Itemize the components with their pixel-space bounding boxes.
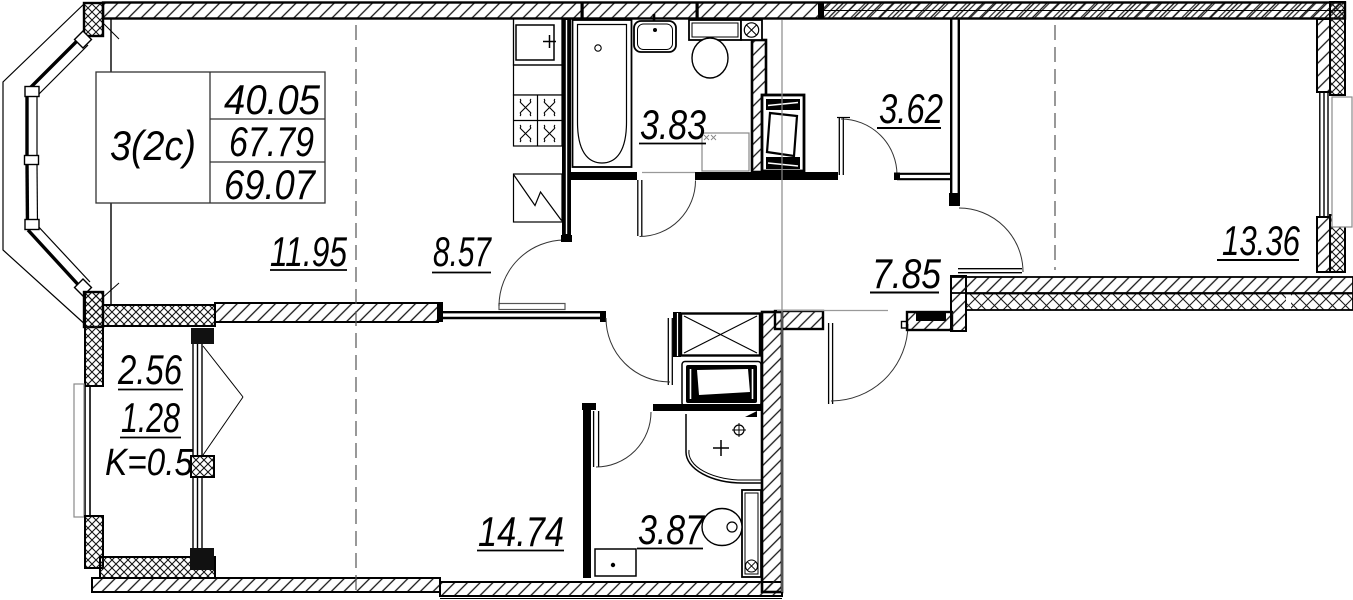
svg-text:K=0.5: K=0.5 (105, 442, 194, 484)
svg-text:8.57: 8.57 (433, 228, 492, 275)
svg-text:40.05: 40.05 (224, 76, 321, 123)
svg-text:69.07: 69.07 (224, 161, 316, 208)
svg-text:2.56: 2.56 (117, 346, 182, 393)
svg-text:3.62: 3.62 (879, 85, 943, 132)
svg-text:67.79: 67.79 (229, 118, 314, 165)
svg-text:3.83: 3.83 (640, 101, 706, 148)
svg-text:13.36: 13.36 (1222, 217, 1300, 264)
svg-text:7.85: 7.85 (872, 250, 942, 297)
svg-text:14.74: 14.74 (478, 508, 564, 555)
svg-text:3.87: 3.87 (638, 506, 705, 553)
svg-text:1.28: 1.28 (121, 394, 180, 441)
svg-text:3(2c): 3(2c) (110, 122, 196, 169)
svg-text:11.95: 11.95 (270, 228, 347, 275)
